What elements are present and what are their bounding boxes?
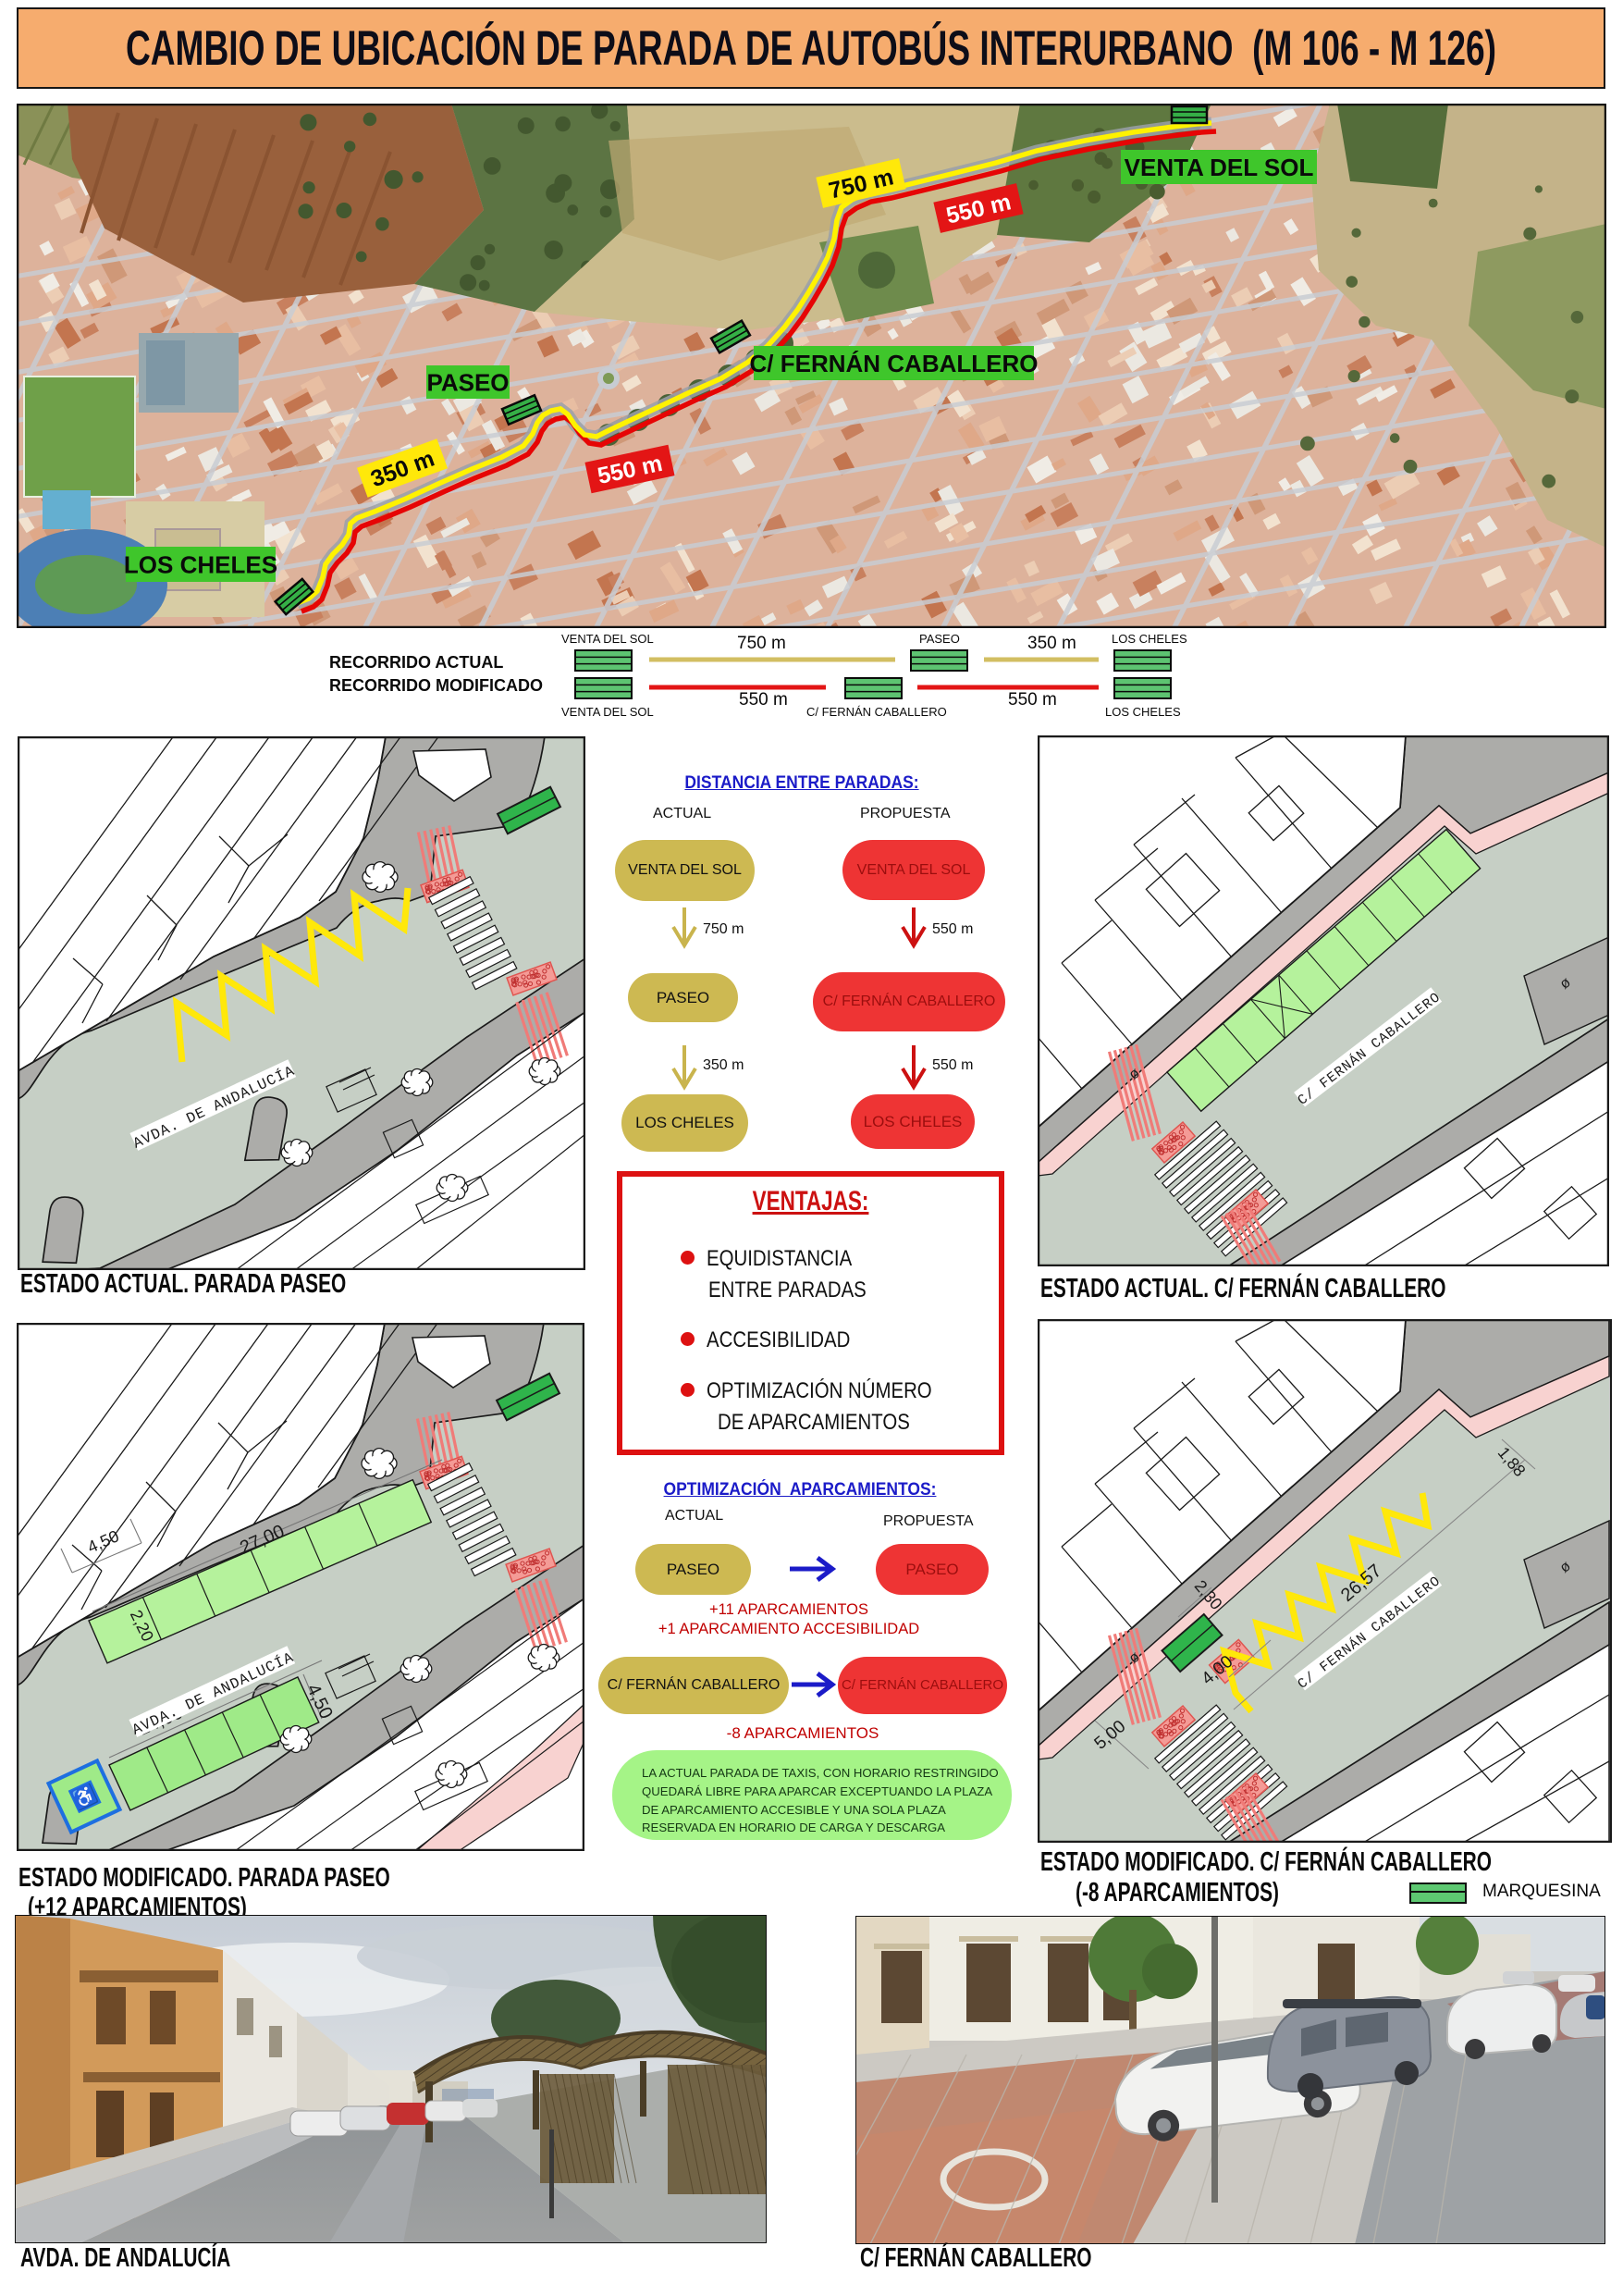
svg-text:C/ FERNÁN CABALLERO: C/ FERNÁN CABALLERO (806, 705, 947, 719)
svg-text:550 m: 550 m (739, 690, 788, 710)
svg-text:PASEO: PASEO (919, 632, 960, 646)
svg-text:LOS CHELES: LOS CHELES (124, 550, 277, 578)
svg-text:VENTA DEL SOL: VENTA DEL SOL (1125, 154, 1314, 181)
svg-text:VENTA DEL SOL: VENTA DEL SOL (561, 705, 654, 719)
svg-text:550 m: 550 m (1008, 690, 1057, 710)
svg-text:LOS CHELES: LOS CHELES (1112, 632, 1187, 646)
svg-text:C/ FERNÁN CABALLERO: C/ FERNÁN CABALLERO (750, 350, 1039, 377)
svg-text:VENTA DEL SOL: VENTA DEL SOL (561, 632, 654, 646)
svg-text:PASEO: PASEO (426, 368, 509, 396)
svg-text:LOS CHELES: LOS CHELES (1105, 705, 1181, 719)
svg-text:750 m: 750 m (737, 634, 786, 653)
svg-text:350 m: 350 m (1027, 634, 1076, 653)
